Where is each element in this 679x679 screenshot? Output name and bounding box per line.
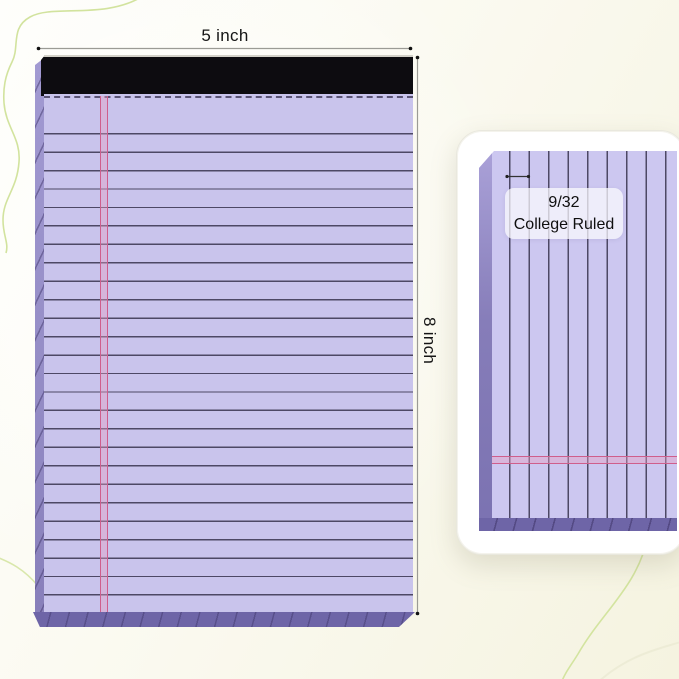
height-dim-dot-bottom — [416, 612, 420, 616]
width-dim-dot-left — [37, 47, 41, 51]
height-dim-dot-top — [416, 56, 420, 60]
ruling-badge: 9/32 College Ruled — [505, 188, 623, 239]
pad-left-edge — [35, 58, 44, 612]
width-dim-dot-right — [409, 47, 413, 51]
height-dimension-label: 8 inch — [419, 301, 439, 381]
pad-bottom-edge — [33, 612, 415, 627]
ruling-type-label: College Ruled — [514, 214, 615, 235]
pad-paper — [44, 94, 413, 612]
ruling-spacing-value: 9/32 — [548, 192, 579, 213]
squiggle-bottom-right — [561, 536, 648, 679]
squiggle-bottom-left — [0, 556, 38, 586]
margin-line — [100, 96, 108, 612]
squiggle-corner-faint — [596, 641, 679, 679]
width-dimension-label: 5 inch — [160, 26, 290, 46]
detail-pad-edge — [479, 151, 492, 531]
product-image: 5 inch 8 inch 9/32 College Ruled — [0, 0, 679, 679]
detail-pad-bottom-edge — [479, 518, 677, 531]
pad-binding — [41, 55, 413, 96]
margin-line-horizontal — [492, 456, 677, 464]
